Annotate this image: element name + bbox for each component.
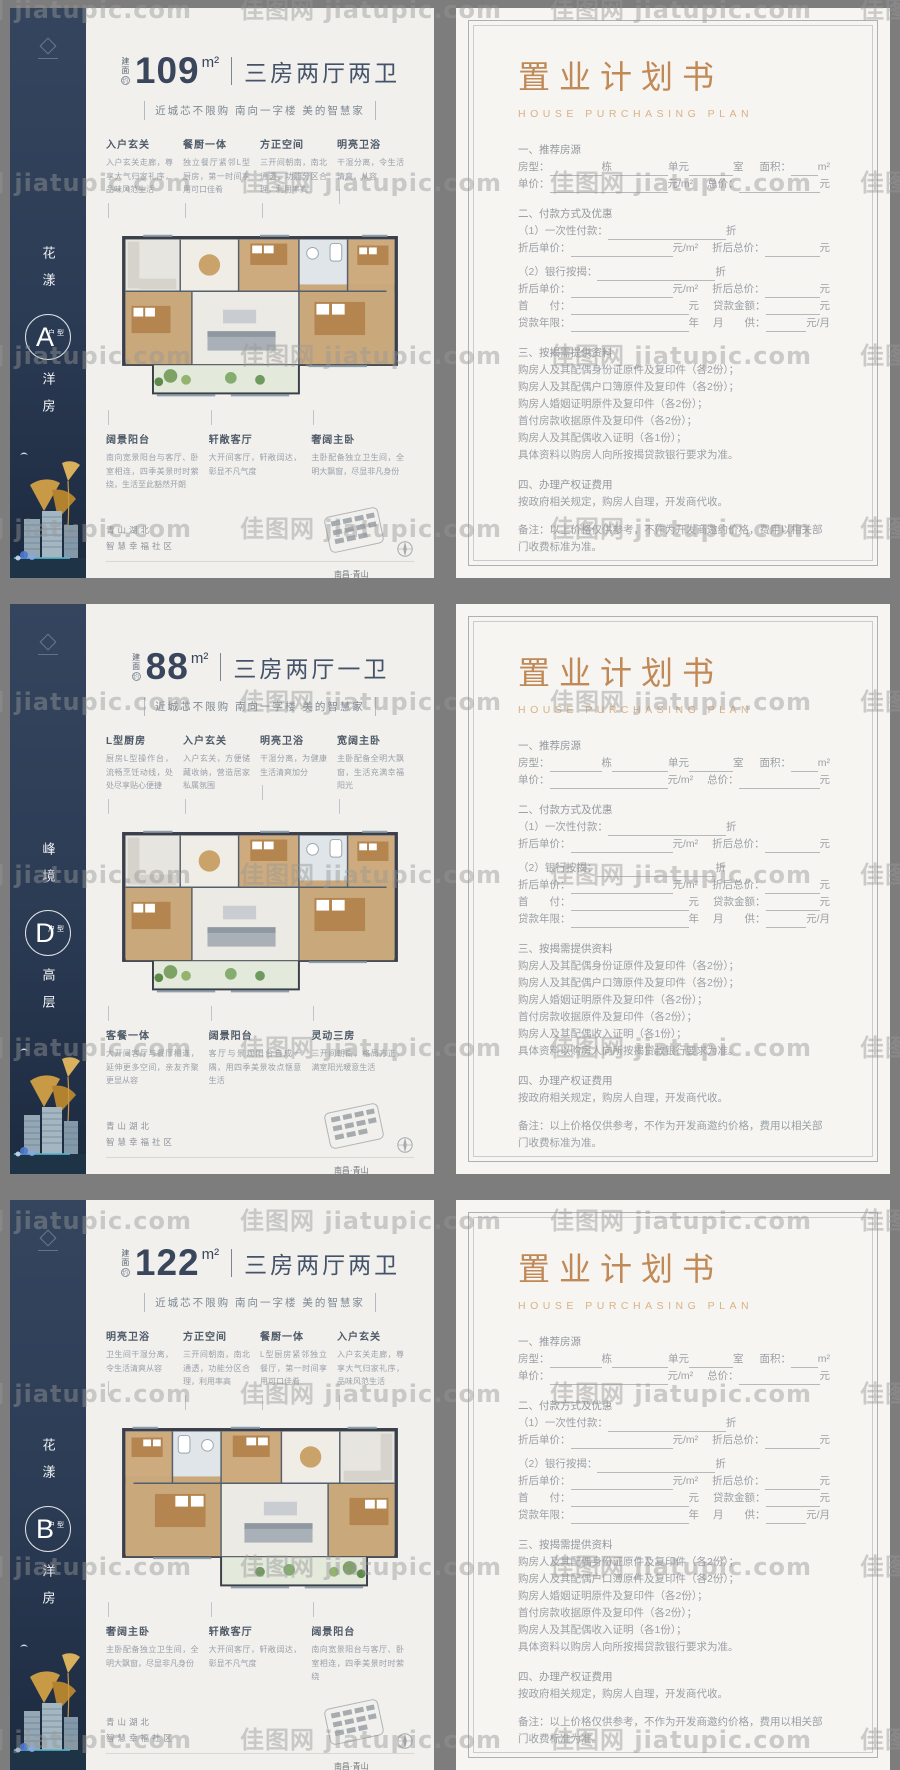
flyer-footer: 青山湖北 智慧幸福社区 bbox=[106, 1694, 414, 1770]
form-line: 单价：元/m²总价：元 bbox=[518, 772, 830, 789]
form-line: 房型：栋单元室面积：m² bbox=[518, 755, 830, 772]
plan-annotation: 明亮卫浴 卫生间干湿分离，令生活清爽从容 bbox=[106, 1328, 183, 1420]
area-value: 109 bbox=[135, 50, 200, 92]
form-underline bbox=[550, 759, 602, 772]
form-label: 年 bbox=[689, 1507, 700, 1524]
sheet-border-inner: 置业计划书 HOUSE PURCHASING PLAN 一、推荐房源房型：栋单元… bbox=[473, 621, 873, 1157]
form-underline bbox=[571, 285, 673, 298]
plan-annotation: 餐厨一体 独立餐厅紧邻L型厨房，第一时间享用可口佳肴 bbox=[183, 136, 260, 228]
doc-heading: 三、按揭需提供资料 bbox=[518, 941, 830, 958]
form-gap bbox=[698, 893, 712, 894]
form-underline bbox=[571, 244, 673, 257]
form-underline bbox=[571, 840, 673, 853]
form-label: m² bbox=[818, 159, 830, 176]
doc-text: 首付房款收据原件及复印件（各2份）； bbox=[518, 1605, 830, 1622]
approx-mark: 约 bbox=[132, 672, 141, 681]
plan-annotation: 阔景阳台 客厅与景观阳台自成一隅，用四季美景妆点惬意生活 bbox=[209, 1006, 312, 1098]
form-line: 单价：元/m²总价：元 bbox=[518, 1368, 830, 1385]
footer-divider bbox=[106, 1157, 414, 1158]
approx-mark: 约 bbox=[121, 1268, 130, 1277]
form-label: 元/m² bbox=[673, 240, 699, 257]
form-label: 栋 bbox=[602, 159, 613, 176]
floor-plan-wrap bbox=[106, 824, 414, 1004]
form-line: （2）银行按揭：折 bbox=[518, 1456, 830, 1473]
doc-spacer bbox=[518, 1656, 830, 1663]
form-gap bbox=[744, 1367, 760, 1368]
form-underline bbox=[571, 1511, 689, 1524]
form-label: 元 bbox=[820, 877, 831, 894]
doc-text: 具体资料以购房人向所按揭贷款银行要求为准。 bbox=[518, 1639, 830, 1656]
form-line: 单价：元/m²总价：元 bbox=[518, 176, 830, 193]
flyer-footer: 青山湖北 智慧幸福社区 bbox=[106, 1098, 414, 1174]
form-label: 元 bbox=[820, 1432, 831, 1449]
form-underline bbox=[766, 302, 820, 315]
doc-text: 购房人婚姻证明原件及复印件（各2份）； bbox=[518, 992, 830, 1009]
doc-spacer bbox=[518, 1152, 830, 1157]
form-label: 面积： bbox=[760, 755, 792, 772]
annotations-top: 明亮卫浴 卫生间干湿分离，令生活清爽从容 方正空间 三开间朝南，南北通透，功能分… bbox=[106, 1328, 414, 1420]
form-label: 折后总价： bbox=[712, 1432, 765, 1449]
form-underline bbox=[571, 1436, 673, 1449]
doc-text: 购房人及其配偶户口簿原件及复印件（各2份）； bbox=[518, 379, 830, 396]
doc-spacer bbox=[518, 789, 830, 796]
doc-heading: 三、按揭需提供资料 bbox=[518, 345, 830, 362]
form-label: 月 供： bbox=[713, 1507, 766, 1524]
site-plan-group bbox=[317, 1098, 414, 1154]
form-label: 室 bbox=[733, 1351, 744, 1368]
form-label: 房型： bbox=[518, 159, 550, 176]
form-gap bbox=[744, 771, 760, 772]
doc-text: 购房人婚姻证明原件及复印件（各2份）； bbox=[518, 396, 830, 413]
plan-annotation: 阔景阳台 南向宽景阳台与客厅、卧室相连，四季美景时时萦绕，生活至此豁然开朗 bbox=[106, 410, 209, 502]
doc-spacer bbox=[518, 1385, 830, 1392]
form-underline bbox=[689, 163, 733, 176]
doc-text: 购房人及其配偶身份证原件及复印件（各2份）； bbox=[518, 362, 830, 379]
doc-subtitle: HOUSE PURCHASING PLAN bbox=[518, 1300, 830, 1312]
form-line: 贷款年限：年月 供：元/月 bbox=[518, 1507, 830, 1524]
form-label: 折 bbox=[715, 860, 726, 877]
plan-annotation: 阔景阳台 南向宽景阳台与客厅、卧室相连，四季美景时时萦绕 bbox=[311, 1602, 414, 1694]
form-line: （2）银行按揭：折 bbox=[518, 860, 830, 877]
form-label: 总价： bbox=[707, 1368, 739, 1385]
flyer-main: 建面 约 122 m² 三房两厅两卫 近城芯不限购 南向一字楼 美的智慧家 明亮… bbox=[86, 1200, 434, 1770]
doc-heading: 四、办理产权证费用 bbox=[518, 1073, 830, 1090]
form-line: 折后单价：元/m²折后总价：元 bbox=[518, 281, 830, 298]
plan-annotation: 灵动三房 三开间朝南，格局方正，满室阳光暖意生活 bbox=[311, 1006, 414, 1098]
doc-text: 首付房款收据原件及复印件（各2份）； bbox=[518, 1009, 830, 1026]
annotation-title: 客餐一体 bbox=[106, 1027, 199, 1042]
leader-line bbox=[262, 785, 263, 800]
unit-type-badge: A 户型 bbox=[25, 314, 71, 360]
annotation-title: 奢阔主卧 bbox=[106, 1623, 199, 1638]
form-label: 元 bbox=[820, 281, 831, 298]
doc-text: 购房人及其配偶收入证明（各1份）； bbox=[518, 1026, 830, 1043]
form-label: 元 bbox=[689, 894, 700, 911]
doc-text: 备注：以上价格仅供参考，不作为开发商邀约价格，费用以相关部门收费标准为准。 bbox=[518, 522, 830, 556]
form-label: 元 bbox=[820, 894, 831, 911]
form-label: 贷款金额： bbox=[713, 298, 766, 315]
doc-spacer bbox=[518, 464, 830, 471]
plan-annotation: 方正空间 三开间朝南，南北通透，功能分区合理，利用率高 bbox=[183, 1328, 260, 1420]
form-underline bbox=[689, 759, 733, 772]
form-line: 房型：栋单元室面积：m² bbox=[518, 1351, 830, 1368]
sheet-border-outer: 置业计划书 HOUSE PURCHASING PLAN 一、推荐房源房型：栋单元… bbox=[468, 20, 878, 566]
brand-logo bbox=[35, 1230, 61, 1256]
area-value: 88 bbox=[146, 646, 189, 688]
floorplan-flyer: 花漾 B 户型 洋房 bbox=[10, 1200, 434, 1770]
form-underline bbox=[550, 1355, 602, 1368]
form-label: 元 bbox=[689, 298, 700, 315]
poster-grid: 花漾 A 户型 洋房 bbox=[0, 0, 900, 1770]
form-label: 折 bbox=[715, 1456, 726, 1473]
plan-annotation: L型厨房 厨房L型操作台，流畅烹饪动线，处处尽享贴心便捷 bbox=[106, 732, 183, 824]
plan-annotation: 明亮卫浴 干湿分离，为健康生活清爽加分 bbox=[260, 732, 337, 824]
form-line: （1）一次性付款：折 bbox=[518, 819, 830, 836]
form-label: 元/m² bbox=[673, 281, 699, 298]
plan-annotation: 轩敞客厅 大开间客厅，轩敞阔达，彰显不凡气度 bbox=[209, 410, 312, 502]
purchase-plan-sheet: 置业计划书 HOUSE PURCHASING PLAN 一、推荐房源房型：栋单元… bbox=[456, 604, 890, 1174]
doc-heading: 一、推荐房源 bbox=[518, 1334, 830, 1351]
form-label: 元/m² bbox=[673, 1432, 699, 1449]
plan-annotation: 奢阔主卧 主卧配备独立卫生间，全明大飘窗，尽显非凡身份 bbox=[106, 1602, 209, 1694]
doc-spacer bbox=[518, 1449, 830, 1456]
flyer-header: 建面 约 88 m² 三房两厅一卫 bbox=[106, 646, 414, 688]
form-underline bbox=[597, 1460, 715, 1473]
form-underline bbox=[739, 776, 820, 789]
form-underline bbox=[571, 1494, 689, 1507]
form-underline bbox=[766, 1494, 820, 1507]
form-label: （2）银行按揭： bbox=[518, 264, 597, 281]
form-label: 元 bbox=[820, 240, 831, 257]
leader-line bbox=[339, 799, 340, 814]
site-plan-group bbox=[317, 502, 414, 558]
annotation-title: 明亮卫浴 bbox=[260, 732, 327, 747]
doc-body: 一、推荐房源房型：栋单元室面积：m²单价：元/m²总价：元二、付款方式及优惠（1… bbox=[518, 738, 830, 1157]
form-label: 元/m² bbox=[673, 1473, 699, 1490]
location-slogan: 青山湖北 智慧幸福社区 bbox=[106, 522, 175, 554]
form-underline bbox=[608, 823, 726, 836]
doc-spacer bbox=[518, 332, 830, 339]
area-unit: m² bbox=[202, 1246, 220, 1263]
leader-line bbox=[185, 799, 186, 814]
doc-spacer bbox=[518, 511, 830, 522]
flyer-main: 建面 约 109 m² 三房两厅两卫 近城芯不限购 南向一字楼 美的智慧家 入户… bbox=[86, 8, 434, 578]
form-label: 年 bbox=[689, 315, 700, 332]
sheet-border-outer: 置业计划书 HOUSE PURCHASING PLAN 一、推荐房源房型：栋单元… bbox=[468, 1212, 878, 1758]
form-line: 首 付：元贷款金额：元 bbox=[518, 894, 830, 911]
floor-plan bbox=[110, 228, 410, 408]
doc-text: 购房人婚姻证明原件及复印件（各2份）； bbox=[518, 1588, 830, 1605]
form-label: 贷款金额： bbox=[713, 1490, 766, 1507]
form-label: 面积： bbox=[760, 159, 792, 176]
floor-plan-wrap bbox=[106, 1420, 414, 1600]
form-label: m² bbox=[818, 755, 830, 772]
annotation-desc: 大开间客厅，轩敞阔达，彰显不凡气度 bbox=[209, 451, 302, 478]
form-underline bbox=[612, 1355, 668, 1368]
doc-text: 按政府相关规定，购房人自理，开发商代收。 bbox=[518, 1090, 830, 1107]
footer-divider bbox=[106, 561, 414, 562]
compass-icon bbox=[396, 1732, 414, 1750]
form-underline bbox=[766, 898, 820, 911]
leader-line bbox=[211, 1602, 212, 1617]
area-value: 122 bbox=[135, 1242, 200, 1284]
form-underline bbox=[766, 1511, 807, 1524]
annotation-desc: 南向宽景阳台与客厅、卧室相连，四季美景时时萦绕 bbox=[311, 1643, 404, 1684]
form-gap bbox=[698, 1489, 712, 1490]
form-label: 室 bbox=[733, 159, 744, 176]
address-block: 地址 南昌·青山湖北·蒋巷西大道东（江西传媒学院斜对面） bbox=[326, 569, 376, 578]
area-label: 建面 约 bbox=[120, 1249, 131, 1277]
floorplan-flyer: 峰境 D 户型 高层 bbox=[10, 604, 434, 1174]
form-line: 折后单价：元/m²折后总价：元 bbox=[518, 1432, 830, 1449]
form-gap bbox=[698, 1448, 712, 1449]
tagline: 近城芯不限购 南向一字楼 美的智慧家 bbox=[144, 697, 376, 716]
form-label: 折 bbox=[726, 223, 737, 240]
address-text: 南昌·青山湖北·蒋巷西大道东（江西传媒学院斜对面） bbox=[334, 1761, 376, 1770]
doc-text: 备注：以上价格仅供参考，不作为开发商邀约价格，费用以相关部门收费标准为准。 bbox=[518, 1118, 830, 1152]
plan-annotation: 明亮卫浴 干湿分离，令生活清爽，从容 bbox=[337, 136, 414, 228]
doc-heading: 三、按揭需提供资料 bbox=[518, 1537, 830, 1554]
form-underline bbox=[791, 163, 818, 176]
area-unit: m² bbox=[202, 54, 220, 71]
annotation-title: 奢阔主卧 bbox=[311, 431, 404, 446]
form-underline bbox=[765, 881, 820, 894]
annotations-top: 入户玄关 入户玄关走廊，尊享大气归家礼序，品味风范生活 餐厨一体 独立餐厅紧邻L… bbox=[106, 136, 414, 228]
form-label: 总价： bbox=[707, 176, 739, 193]
form-label: 折后总价： bbox=[712, 240, 765, 257]
doc-heading: 四、办理产权证费用 bbox=[518, 1669, 830, 1686]
flyer-footer: 青山湖北 智慧幸福社区 bbox=[106, 502, 414, 578]
form-label: 折后单价： bbox=[518, 1432, 571, 1449]
footer-divider bbox=[106, 1753, 414, 1754]
plan-annotation: 入户玄关 入户玄关走廊，尊享大气归家礼序，品味风范生活 bbox=[106, 136, 183, 228]
annotation-desc: 客厅与景观阳台自成一隅，用四季美景妆点惬意生活 bbox=[209, 1047, 302, 1088]
form-label: 单价： bbox=[518, 772, 550, 789]
form-label: 折后总价： bbox=[712, 1473, 765, 1490]
form-gap bbox=[693, 192, 707, 193]
form-label: 单元 bbox=[668, 755, 689, 772]
form-label: 房型： bbox=[518, 1351, 550, 1368]
form-gap bbox=[693, 1384, 707, 1385]
doc-heading: 二、付款方式及优惠 bbox=[518, 802, 830, 819]
doc-spacer bbox=[518, 193, 830, 200]
form-label: 元/月 bbox=[806, 315, 830, 332]
form-label: 元/m² bbox=[673, 877, 699, 894]
form-underline bbox=[550, 180, 668, 193]
doc-spacer bbox=[518, 1060, 830, 1067]
plan-annotation: 轩敞客厅 大开间客厅，轩敞阔达，彰显不凡气度 bbox=[209, 1602, 312, 1694]
doc-text: 购房人及其配偶身份证原件及复印件（各2份）； bbox=[518, 1554, 830, 1571]
annotation-desc: 干湿分离，令生活清爽，从容 bbox=[337, 156, 404, 183]
form-label: 面积： bbox=[760, 1351, 792, 1368]
form-label: 单价： bbox=[518, 1368, 550, 1385]
compass-icon bbox=[396, 1136, 414, 1154]
annotation-desc: 入户玄关走廊，尊享大气归家礼序，品味风范生活 bbox=[106, 156, 173, 197]
form-label: 月 供： bbox=[713, 315, 766, 332]
form-underline bbox=[597, 268, 715, 281]
annotation-title: 轩敞客厅 bbox=[209, 431, 302, 446]
annotation-desc: 三开间朝南，南北通透，功能分区合理，利用率高 bbox=[183, 1348, 250, 1389]
annotation-desc: 主卧配备全明大飘窗，生活充满幸福阳光 bbox=[337, 752, 404, 793]
doc-text: 购房人及其配偶身份证原件及复印件（各2份）； bbox=[518, 958, 830, 975]
form-underline bbox=[571, 1477, 673, 1490]
sidebar-illustration bbox=[10, 393, 86, 578]
doc-spacer bbox=[518, 928, 830, 935]
leader-line bbox=[108, 203, 109, 218]
form-label: 贷款年限： bbox=[518, 1507, 571, 1524]
compass-icon bbox=[396, 540, 414, 558]
form-label: 单元 bbox=[668, 1351, 689, 1368]
doc-text: 购房人及其配偶收入证明（各1份）； bbox=[518, 1622, 830, 1639]
annotation-title: 宽阔主卧 bbox=[337, 732, 404, 747]
form-underline bbox=[766, 319, 807, 332]
doc-body: 一、推荐房源房型：栋单元室面积：m²单价：元/m²总价：元二、付款方式及优惠（1… bbox=[518, 142, 830, 561]
flyer-header: 建面 约 122 m² 三房两厅两卫 bbox=[106, 1242, 414, 1284]
leader-line bbox=[108, 410, 109, 425]
leader-line bbox=[262, 203, 263, 218]
form-underline bbox=[571, 881, 673, 894]
doc-spacer bbox=[518, 1748, 830, 1753]
rooms-config: 三房两厅两卫 bbox=[244, 54, 400, 88]
annotation-title: 阔景阳台 bbox=[106, 431, 199, 446]
flyer-header: 建面 约 109 m² 三房两厅两卫 bbox=[106, 50, 414, 92]
annotation-title: 阔景阳台 bbox=[311, 1623, 404, 1638]
flyer-sidebar: 峰境 D 户型 高层 bbox=[10, 604, 86, 1174]
form-label: 年 bbox=[689, 911, 700, 928]
doc-text: 购房人及其配偶收入证明（各1份）； bbox=[518, 430, 830, 447]
purchase-plan-sheet: 置业计划书 HOUSE PURCHASING PLAN 一、推荐房源房型：栋单元… bbox=[456, 1200, 890, 1770]
series-name: 峰境 bbox=[39, 842, 58, 896]
form-gap bbox=[698, 256, 712, 257]
doc-text: 按政府相关规定，购房人自理，开发商代收。 bbox=[518, 494, 830, 511]
form-label: 元 bbox=[820, 176, 831, 193]
unit-type-suffix: 户型 bbox=[48, 1520, 66, 1530]
doc-title: 置业计划书 bbox=[518, 52, 830, 98]
site-plan-map bbox=[317, 1098, 391, 1154]
form-gap bbox=[699, 331, 713, 332]
doc-subtitle: HOUSE PURCHASING PLAN bbox=[518, 704, 830, 716]
form-line: （1）一次性付款：折 bbox=[518, 223, 830, 240]
sheet-border-inner: 置业计划书 HOUSE PURCHASING PLAN 一、推荐房源房型：栋单元… bbox=[473, 1217, 873, 1753]
doc-spacer bbox=[518, 1107, 830, 1118]
form-underline bbox=[608, 1419, 726, 1432]
annotation-desc: 三开间朝南，格局方正，满室阳光暖意生活 bbox=[311, 1047, 404, 1074]
annotation-desc: 三开间朝南，南北通透，功能分区合理，利用率高 bbox=[260, 156, 327, 197]
form-label: 室 bbox=[733, 755, 744, 772]
annotation-desc: 厨房L型操作台，流畅烹饪动线，处处尽享贴心便捷 bbox=[106, 752, 173, 793]
form-label: 元 bbox=[820, 298, 831, 315]
form-label: 折 bbox=[715, 264, 726, 281]
form-label: 折后单价： bbox=[518, 836, 571, 853]
form-label: 元/m² bbox=[668, 1368, 694, 1385]
form-label: 元 bbox=[820, 1473, 831, 1490]
flyer-sidebar: 花漾 A 户型 洋房 bbox=[10, 8, 86, 578]
form-underline bbox=[597, 864, 715, 877]
form-underline bbox=[765, 244, 820, 257]
form-line: （1）一次性付款：折 bbox=[518, 1415, 830, 1432]
leader-line bbox=[313, 410, 314, 425]
form-label: m² bbox=[818, 1351, 830, 1368]
unit-type-badge: B 户型 bbox=[25, 1506, 71, 1552]
form-underline bbox=[765, 1436, 820, 1449]
doc-text: 首付房款收据原件及复印件（各2份）； bbox=[518, 413, 830, 430]
annotation-desc: 大开间客厅与餐厅相连，延伸更多空间，亲友齐聚更显从容 bbox=[106, 1047, 199, 1088]
series-name: 花漾 bbox=[39, 246, 58, 300]
form-label: 单元 bbox=[668, 159, 689, 176]
form-gap bbox=[699, 314, 713, 315]
doc-body: 一、推荐房源房型：栋单元室面积：m²单价：元/m²总价：元二、付款方式及优惠（1… bbox=[518, 1334, 830, 1753]
form-label: 折后总价： bbox=[712, 281, 765, 298]
leader-line bbox=[185, 203, 186, 218]
form-label: 元/月 bbox=[806, 1507, 830, 1524]
form-gap bbox=[693, 788, 707, 789]
plan-annotation: 入户玄关 入户玄关走廊，尊享大气归家礼序，品味风范生活 bbox=[337, 1328, 414, 1420]
series-name: 花漾 bbox=[39, 1438, 58, 1492]
annotation-desc: 主卧配备独立卫生间，全明大飘窗，尽显非凡身份 bbox=[106, 1643, 199, 1670]
tagline: 近城芯不限购 南向一字楼 美的智慧家 bbox=[144, 1293, 376, 1312]
leader-line bbox=[211, 410, 212, 425]
plan-annotation: 客餐一体 大开间客厅与餐厅相连，延伸更多空间，亲友齐聚更显从容 bbox=[106, 1006, 209, 1098]
form-label: 贷款年限： bbox=[518, 315, 571, 332]
form-label: 单价： bbox=[518, 176, 550, 193]
form-label: 元/m² bbox=[668, 176, 694, 193]
plan-annotation: 方正空间 三开间朝南，南北通透，功能分区合理，利用率高 bbox=[260, 136, 337, 228]
address-block: 地址 南昌·青山湖北·蒋巷西大道东（江西传媒学院斜对面） bbox=[326, 1761, 376, 1770]
leader-line bbox=[313, 1602, 314, 1617]
annotation-desc: 独立餐厅紧邻L型厨房，第一时间享用可口佳肴 bbox=[183, 156, 250, 197]
annotation-desc: 入户玄关走廊，尊享大气归家礼序，品味风范生活 bbox=[337, 1348, 404, 1389]
address-block: 地址 南昌·青山湖北·蒋巷西大道东（江西传媒学院斜对面） bbox=[326, 1165, 376, 1174]
form-underline bbox=[571, 319, 689, 332]
form-underline bbox=[550, 1372, 668, 1385]
form-line: （2）银行按揭：折 bbox=[518, 264, 830, 281]
leader-line bbox=[313, 1006, 314, 1021]
annotation-title: 入户玄关 bbox=[337, 1328, 404, 1343]
annotation-title: 明亮卫浴 bbox=[337, 136, 404, 151]
unit-type-suffix: 户型 bbox=[48, 924, 66, 934]
floorplan-flyer: 花漾 A 户型 洋房 bbox=[10, 8, 434, 578]
form-label: （2）银行按揭： bbox=[518, 860, 597, 877]
form-gap bbox=[699, 910, 713, 911]
form-label: 月 供： bbox=[713, 911, 766, 928]
form-gap bbox=[698, 297, 712, 298]
site-plan-map bbox=[317, 1694, 391, 1750]
form-line: 折后单价：元/m²折后总价：元 bbox=[518, 836, 830, 853]
form-line: 贷款年限：年月 供：元/月 bbox=[518, 911, 830, 928]
site-plan-map bbox=[317, 502, 391, 558]
form-underline bbox=[571, 302, 689, 315]
form-label: 元 bbox=[820, 836, 831, 853]
doc-text: 具体资料以购房人向所按揭贷款银行要求为准。 bbox=[518, 447, 830, 464]
annotation-desc: 南向宽景阳台与客厅、卧室相连，四季美景时时萦绕，生活至此豁然开朗 bbox=[106, 451, 199, 492]
form-label: 折后单价： bbox=[518, 281, 571, 298]
form-label: 元 bbox=[689, 1490, 700, 1507]
floor-plan-wrap bbox=[106, 228, 414, 408]
address-text: 南昌·青山湖北·蒋巷西大道东（江西传媒学院斜对面） bbox=[334, 569, 376, 578]
area-label: 建面 约 bbox=[120, 57, 131, 85]
form-line: 房型：栋单元室面积：m² bbox=[518, 159, 830, 176]
form-label: 首 付： bbox=[518, 298, 571, 315]
form-label: 折后总价： bbox=[712, 836, 765, 853]
form-label: 房型： bbox=[518, 755, 550, 772]
form-underline bbox=[550, 163, 602, 176]
sheet-border-outer: 置业计划书 HOUSE PURCHASING PLAN 一、推荐房源房型：栋单元… bbox=[468, 616, 878, 1162]
form-label: 总价： bbox=[707, 772, 739, 789]
form-underline bbox=[791, 759, 818, 772]
form-label: 元/月 bbox=[806, 911, 830, 928]
plan-annotation: 宽阔主卧 主卧配备全明大飘窗，生活充满幸福阳光 bbox=[337, 732, 414, 824]
doc-text: 备注：以上价格仅供参考，不作为开发商邀约价格，费用以相关部门收费标准为准。 bbox=[518, 1714, 830, 1748]
